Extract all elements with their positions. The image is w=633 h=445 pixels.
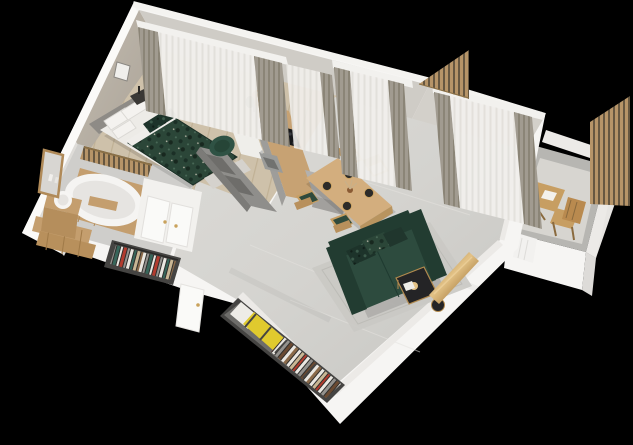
entry-door	[176, 284, 204, 332]
door-handle-2	[174, 224, 177, 227]
mirror	[39, 150, 63, 197]
plate	[323, 182, 332, 191]
apartment-3d-scene	[0, 0, 633, 445]
entry-door-handle	[196, 303, 200, 307]
floor-plan-render	[0, 0, 633, 445]
faucet	[260, 150, 263, 153]
plate-3	[343, 202, 352, 211]
plate-4	[365, 189, 374, 198]
door-handle	[163, 220, 166, 223]
wall-art	[114, 62, 130, 81]
living-sheer-2	[450, 96, 524, 224]
